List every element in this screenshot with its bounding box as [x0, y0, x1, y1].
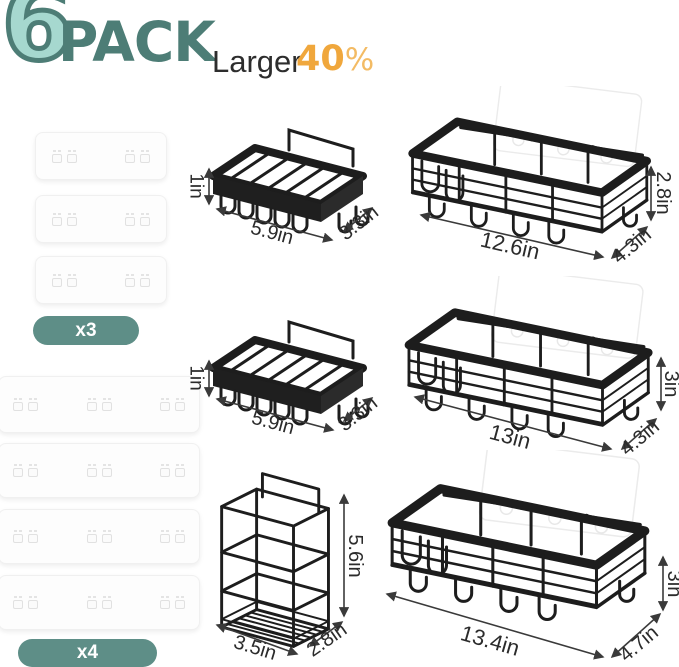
pack-label: PACK: [58, 15, 215, 70]
larger-label: Larger: [212, 46, 302, 77]
percent-label: 40%: [296, 42, 374, 77]
dimension-arrows: [0, 0, 679, 667]
dim-label-soap-mid-height: 1in: [187, 365, 206, 390]
dim-label-soap-top-height: 1in: [187, 173, 206, 198]
percent-number: 40: [296, 39, 345, 79]
percent-sign: %: [345, 42, 374, 78]
dim-label-caddy-mid-height: 3in: [661, 371, 679, 398]
dim-label-toothbrush-height: 5.6in: [345, 534, 365, 577]
dim-label-caddy-top-height: 2.8in: [653, 171, 673, 214]
dim-label-caddy-bottom-height: 3in: [664, 571, 679, 598]
product-infographic: 6 PACK Larger 40% x3 x4: [0, 0, 679, 667]
